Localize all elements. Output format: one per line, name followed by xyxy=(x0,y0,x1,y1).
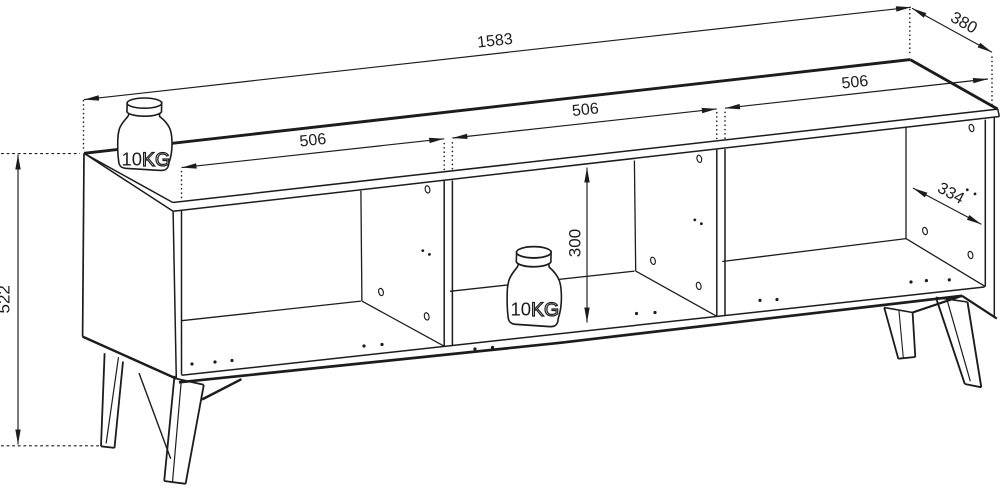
svg-text:KG: KG xyxy=(142,149,170,171)
svg-text:522: 522 xyxy=(0,285,14,313)
svg-text:KG: KG xyxy=(531,299,559,321)
svg-text:506: 506 xyxy=(571,100,600,120)
svg-text:10: 10 xyxy=(511,299,532,320)
svg-text:300: 300 xyxy=(565,229,584,257)
svg-text:506: 506 xyxy=(299,131,328,151)
svg-text:10: 10 xyxy=(122,149,143,170)
svg-text:506: 506 xyxy=(841,73,870,93)
